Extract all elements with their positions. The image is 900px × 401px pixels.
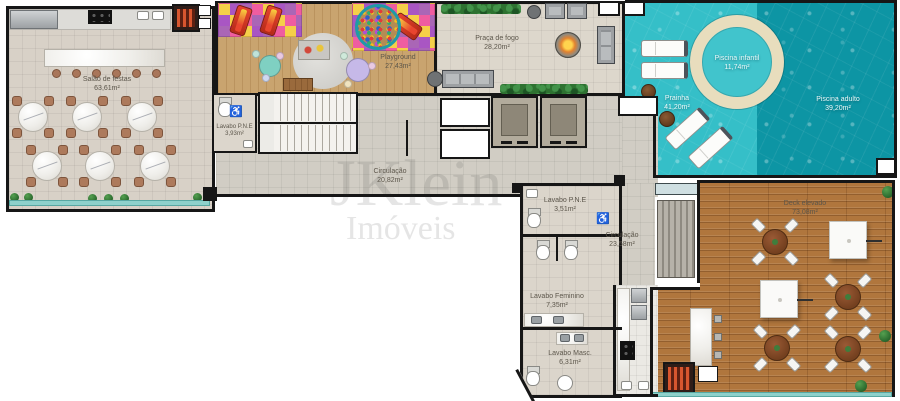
wall — [650, 287, 700, 290]
pillar — [512, 183, 522, 193]
room-label-lavabo-pne-2: Lavabo P.N.E 3,51m² — [530, 197, 600, 214]
kitchen-counter — [617, 288, 630, 391]
dining-table — [17, 101, 49, 133]
kids-chair — [344, 80, 352, 88]
appliance — [631, 288, 647, 303]
room-label-lavabo-feminino: Lavabo Feminino 7,35m² — [522, 293, 592, 310]
room-label-playground: Playground 27,43m² — [356, 54, 440, 71]
room-name: Piscina adulto — [798, 96, 878, 105]
plant — [855, 380, 867, 392]
wall — [520, 327, 622, 330]
room-area: 28,20m² — [447, 44, 547, 53]
sun-lounger — [641, 62, 688, 79]
kids-activity-table — [298, 40, 330, 60]
room-label-piscina-adulto: Piscina adulto 39,20m² — [798, 96, 878, 113]
armchair — [567, 3, 587, 19]
storage-room-1 — [440, 98, 490, 127]
room-label-deck: Deck elevado 73,08m² — [760, 200, 850, 217]
room-area: 39,20m² — [798, 105, 878, 114]
fire-pit — [555, 32, 581, 58]
cabinet — [198, 18, 211, 29]
room-area: 6,31m² — [535, 359, 605, 368]
wall — [697, 180, 895, 183]
deck-edge — [652, 392, 892, 397]
sink-icon — [531, 316, 542, 324]
plant — [879, 330, 891, 342]
dining-table — [139, 150, 171, 182]
sofa — [597, 26, 615, 64]
dining-table — [31, 150, 63, 182]
kids-chair — [262, 74, 270, 82]
dining-table — [126, 101, 158, 133]
room-area: 3,93m² — [213, 131, 256, 138]
deck-table-set — [824, 325, 872, 373]
wall — [650, 287, 653, 397]
room-name: Deck elevado — [760, 200, 850, 209]
sink-icon — [152, 11, 164, 20]
wall — [613, 285, 616, 397]
room-area: 3,51m² — [530, 206, 600, 215]
wall — [892, 180, 895, 397]
cooktop — [620, 341, 635, 360]
room-label-prainha: Prainha 41,20m² — [647, 95, 707, 112]
room-name: Lavabo Masc. — [535, 350, 605, 359]
side-table — [427, 71, 443, 87]
cabinet — [198, 5, 211, 16]
appliance — [631, 305, 647, 320]
pool-piscina-adulto — [757, 3, 894, 175]
ball-pit — [355, 4, 401, 50]
dining-table — [84, 150, 116, 182]
pillar — [614, 175, 625, 186]
room-name: Piscina infantil — [697, 55, 777, 64]
wall — [378, 93, 420, 96]
sink-icon — [243, 140, 253, 148]
cooktop — [88, 10, 112, 24]
sink-icon — [553, 316, 564, 324]
dining-table — [71, 101, 103, 133]
deck-table-set — [751, 218, 799, 266]
room-name: Circulação — [592, 232, 652, 241]
room-area: 73,08m² — [760, 209, 850, 218]
pool-pillar — [623, 1, 645, 16]
room-name: Prainha — [647, 95, 707, 104]
stair-flight-upper — [274, 94, 356, 121]
sink-icon — [621, 381, 632, 390]
glass-wall — [9, 200, 210, 206]
room-label-circulacao-2: Circulação 23,58m² — [592, 232, 652, 249]
room-area: 11,74m² — [697, 64, 777, 73]
fridge — [10, 10, 58, 29]
pedestal-sink — [557, 375, 573, 391]
churrasqueira-grill — [663, 362, 695, 395]
bench — [283, 78, 313, 91]
room-area: 20,82m² — [350, 177, 430, 186]
deck-table-set — [753, 324, 801, 372]
room-name: Lavabo P.N.E — [213, 124, 256, 131]
pillar — [203, 187, 217, 201]
stair-divider — [260, 122, 356, 124]
bar-table — [44, 49, 165, 67]
toilet-icon — [536, 240, 549, 259]
island-stool — [714, 351, 722, 359]
island-stool — [714, 315, 722, 323]
room-name: Lavabo Feminino — [522, 293, 592, 302]
room-area: 63,61m² — [40, 85, 174, 94]
wall — [655, 175, 897, 178]
toilet-icon — [564, 240, 577, 259]
wall — [697, 183, 700, 283]
sink-icon — [638, 381, 649, 390]
wall — [653, 112, 656, 178]
room-label-circulacao-1: Circulação 20,82m² — [350, 168, 430, 185]
sink-icon — [574, 334, 584, 342]
room-label-piscina-infantil: Piscina infantil 11,74m² — [697, 55, 777, 72]
sink-icon — [560, 334, 570, 342]
hedge — [441, 4, 521, 14]
room-name: Praça de fogo — [447, 35, 547, 44]
room-area: 41,20m² — [647, 104, 707, 113]
room-name: Playground — [356, 54, 440, 63]
room-area: 7,35m² — [522, 302, 592, 311]
umbrella — [829, 221, 867, 259]
pool-side-table — [659, 111, 675, 127]
island-stool — [714, 333, 722, 341]
sun-lounger — [641, 40, 688, 57]
churrasqueira-grill — [172, 4, 200, 32]
counter-box — [698, 366, 718, 382]
sink-icon — [137, 11, 149, 20]
wall — [556, 237, 558, 261]
room-name: Salão de festas — [40, 76, 174, 85]
sofa — [442, 70, 494, 88]
armchair — [545, 3, 565, 19]
hedge — [500, 84, 588, 94]
wheelchair-icon: ♿ — [229, 107, 243, 118]
window-strip — [655, 183, 700, 195]
room-name: Circulação — [350, 168, 430, 177]
room-name: Lavabo P.N.E — [530, 197, 600, 206]
kids-chair — [276, 52, 284, 60]
pool-pillar — [876, 158, 896, 175]
room-label-lavabo-pne-1: Lavabo P.N.E 3,93m² — [213, 124, 256, 138]
toilet-icon — [526, 366, 539, 385]
room-label-praca-fogo: Praça de fogo 28,20m² — [447, 35, 547, 52]
watermark-subtitle: Imóveis — [346, 210, 456, 248]
wall — [613, 394, 658, 397]
room-area: 23,58m² — [592, 241, 652, 250]
island-counter — [690, 308, 712, 366]
kids-chair — [340, 52, 348, 60]
louver-panel — [657, 200, 695, 278]
wheelchair-icon: ♿ — [596, 214, 610, 225]
side-table — [527, 5, 541, 19]
umbrella — [760, 280, 798, 318]
elevator-2 — [540, 96, 587, 148]
deck-table-set — [824, 273, 872, 321]
room-label-lavabo-masc: Lavabo Masc. 6,31m² — [535, 350, 605, 367]
room-label-salao: Salão de festas 63,61m² — [40, 76, 174, 93]
pool-pillar — [598, 1, 620, 16]
staircase — [258, 92, 358, 154]
kids-chair — [252, 50, 260, 58]
floorplan-canvas: ♿ — [0, 0, 900, 401]
room-area: 27,43m² — [356, 63, 440, 72]
elevator-1 — [491, 96, 538, 148]
